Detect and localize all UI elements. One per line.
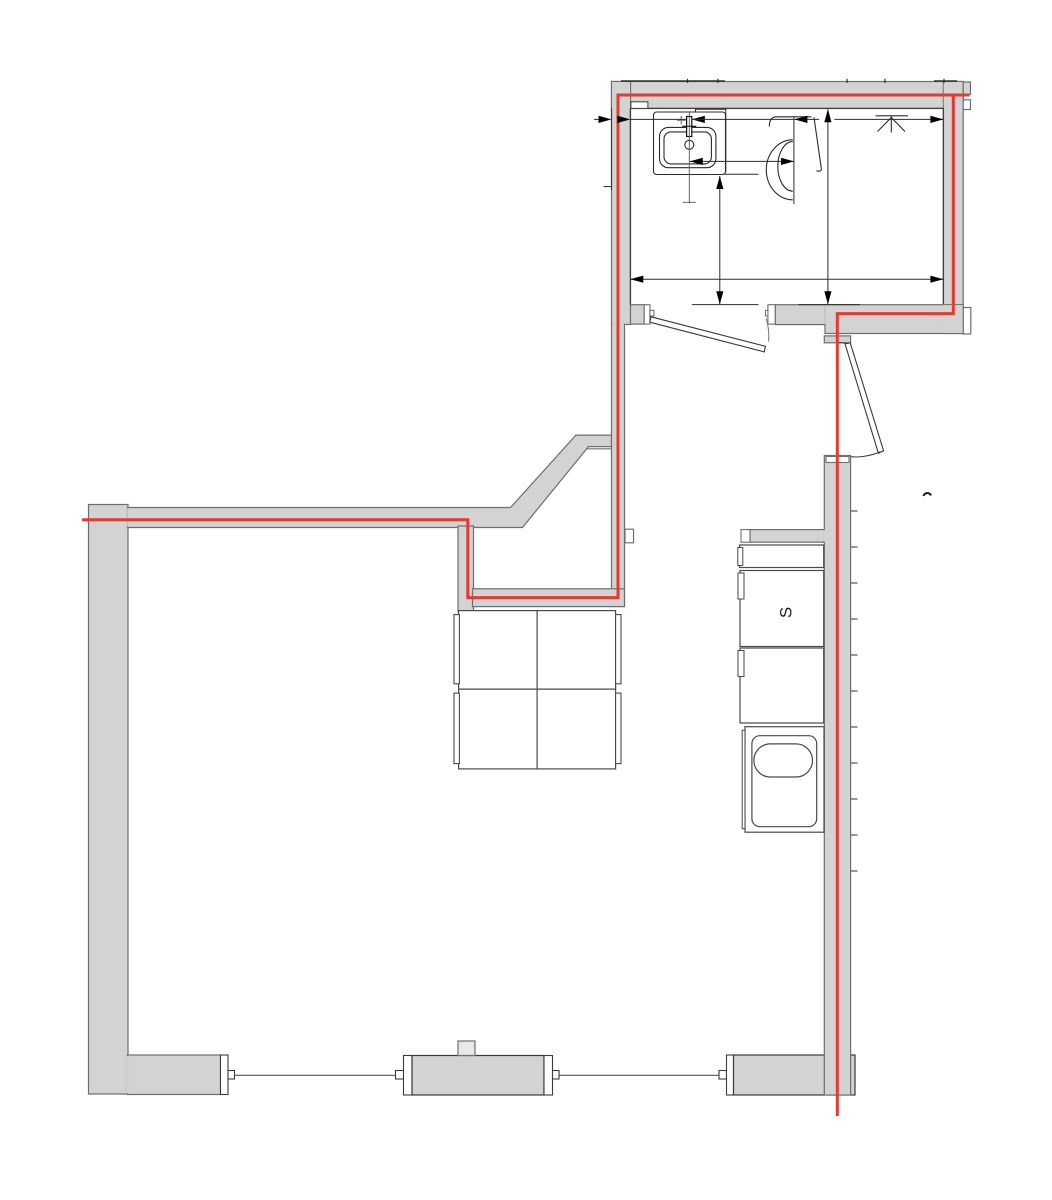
svg-text:S: S: [777, 607, 796, 618]
